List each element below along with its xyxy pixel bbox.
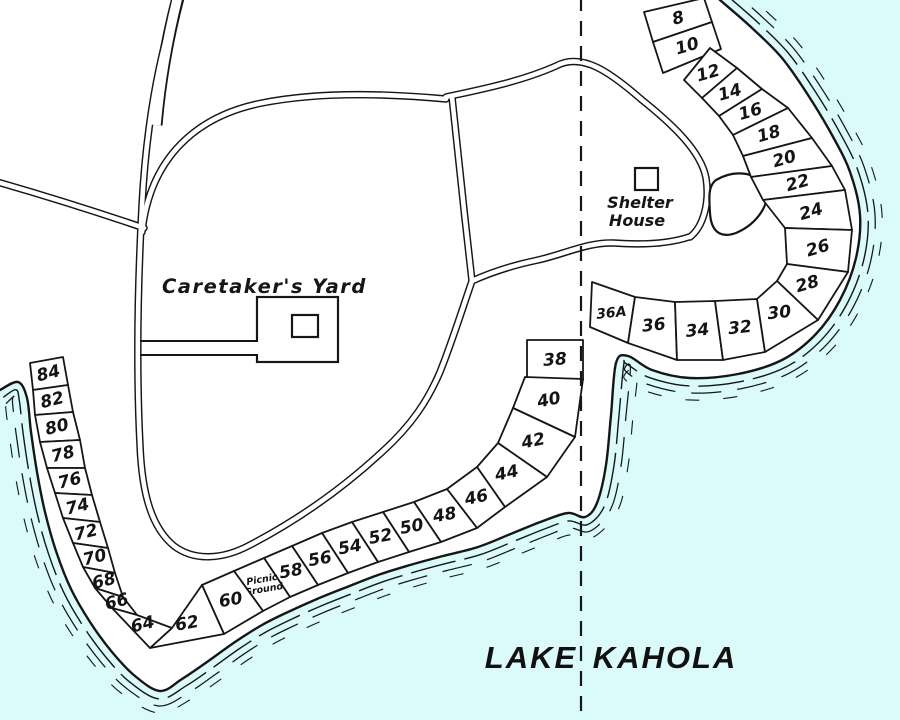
lot-30-label: 30 <box>766 302 792 324</box>
lot-58-label: 58 <box>278 560 305 584</box>
lot-50-label: 50 <box>398 515 425 539</box>
lot-38-label: 38 <box>542 349 567 371</box>
shelter-house-building <box>635 168 658 190</box>
plat-map-canvas: 81012141618202224262836A3634323038404244… <box>0 0 900 720</box>
lot-52-label: 52 <box>367 525 394 549</box>
lot-48-label: 48 <box>430 503 458 527</box>
lot-34-label: 34 <box>685 320 711 342</box>
shelter-house-label-line2: House <box>609 211 665 230</box>
lake-name-left: LAKE <box>485 640 577 675</box>
lot-60-label: 60 <box>217 588 244 612</box>
lot-36a-label: 36A <box>595 304 627 323</box>
lot-36-label: 36 <box>641 314 667 336</box>
lot-32-label: 32 <box>727 317 753 339</box>
caretaker-building <box>292 315 318 337</box>
caretakers-yard-label: Caretaker's Yard <box>162 275 367 298</box>
lot-54-label: 54 <box>337 536 364 560</box>
lot-62-label: 62 <box>174 612 201 636</box>
lake-kahola-plat-map: 81012141618202224262836A3634323038404244… <box>0 0 900 720</box>
lot-56-label: 56 <box>307 547 334 571</box>
lake-name-right: KAHOLA <box>593 640 738 675</box>
shelter-house-label-line1: Shelter <box>607 193 674 212</box>
